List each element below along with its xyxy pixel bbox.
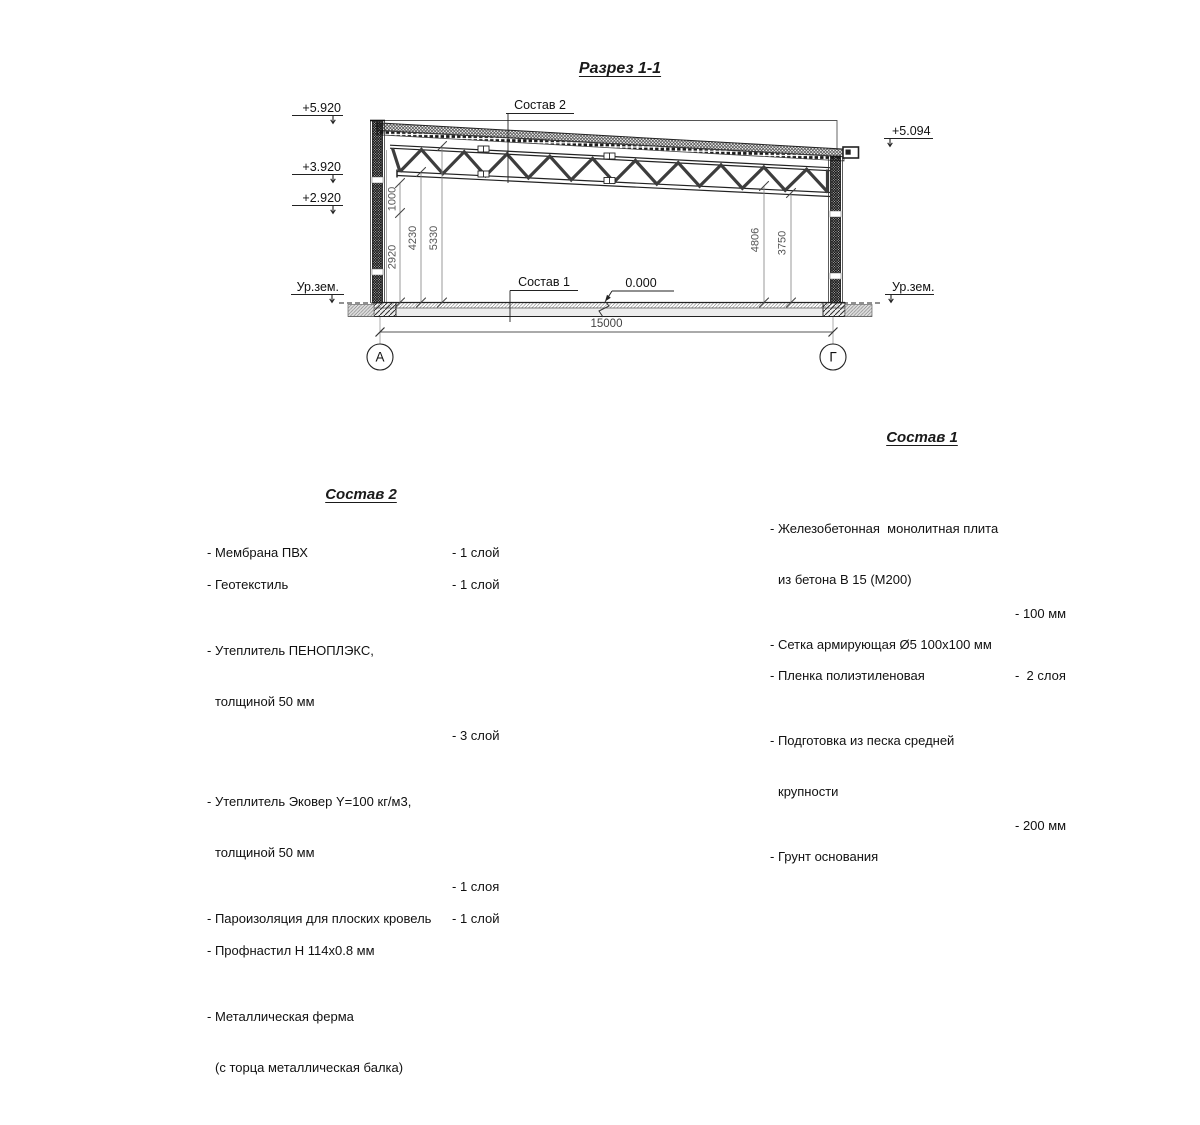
material-quantity: - 1 слой [452,576,500,593]
dim-value: 3750 [777,231,789,255]
list-item: - Подготовка из песка средней крупности … [770,698,1070,834]
material-name: - Геотекстиль [207,576,452,593]
leader-label: Состав 2 [514,98,566,112]
elevation-value: +5.094 [892,124,931,138]
material-name: - Металлическая ферма [207,1008,452,1025]
material-name-line2: толщиной 50 мм [207,693,452,710]
list-item: - Металлическая ферма (с торца металличе… [207,974,507,1110]
material-name: - Пароизоляция для плоских кровель [207,910,452,927]
level-arrow-icon [889,295,894,302]
material-name: - Утеплитель Эковер Y=100 кг/м3, [207,793,452,810]
material-name: - Сетка армирующая Ø5 100х100 мм [770,636,1015,653]
list-item: - Грунт основания [770,848,1070,865]
dim-value: 5330 [428,226,440,250]
ground-left [339,303,375,317]
level-arrow-icon [331,206,336,213]
list-item: - Пленка полиэтиленовая - 2 слоя [770,667,1070,684]
foundation-right [823,303,845,317]
dim-value: 2920 [387,245,399,269]
panel-joint [830,273,841,279]
list-item: - Геотекстиль - 1 слой [207,576,507,593]
elevation-value: +5.920 [302,101,341,115]
material-quantity: - 2 слоя [1015,667,1066,684]
material-quantity: - 200 мм [1015,817,1066,834]
material-name-line2: толщиной 50 мм [207,844,452,861]
roof-end-cap [843,147,859,158]
axis-letter: Г [829,350,837,365]
left-wall [370,121,387,304]
material-name: - Утеплитель ПЕНОПЛЭКС, [207,642,452,659]
material-name: - Грунт основания [770,848,1015,865]
dimension-right-group: 4806 3750 [750,182,796,308]
floor-slab [348,301,872,317]
list-item: - Пароизоляция для плоских кровель - 1 с… [207,910,507,927]
ground-right [843,303,880,317]
ground-level-label: Ур.зем. [297,280,339,294]
level-arrow-icon [330,295,335,302]
ground-level-label: Ур.зем. [892,280,934,294]
material-name-line2: из бетона В 15 (М200) [770,571,1015,588]
elevation-mark-3920: +3.920 [292,160,343,182]
sostav2-heading: Состав 2 [281,486,441,503]
material-name: - Мембрана ПВХ [207,544,452,561]
dim-value: 4806 [750,228,762,252]
leader-label: Состав 1 [518,275,570,289]
elevation-value: +2.920 [302,191,341,205]
sostav1-heading: Состав 1 [842,429,1002,446]
sostav1-list: - Железобетонная монолитная плита из бет… [770,486,1070,879]
elevation-mark-5920: +5.920 [292,101,343,123]
material-quantity: - 100 мм [1015,605,1066,622]
axis-letter: А [375,350,384,365]
right-wall [829,156,843,303]
span-dim-value: 15000 [591,318,623,330]
list-item: - Утеплитель Эковер Y=100 кг/м3, толщино… [207,759,507,895]
leader-arrowhead [605,295,611,302]
ground-level-mark-right: Ур.зем. [885,280,934,302]
sostav2-list: - Мембрана ПВХ - 1 слой - Геотекстиль - … [207,544,507,1125]
panel-joint [830,211,841,217]
elevation-mark-2920: +2.920 [292,191,343,213]
list-item: - Утеплитель ПЕНОПЛЭКС, толщиной 50 мм -… [207,608,507,744]
dim-value: 4230 [407,226,419,250]
span-dimension: 15000 [376,317,838,344]
level-arrow-icon [331,175,336,182]
list-item: - Мембрана ПВХ - 1 слой [207,544,507,561]
material-name-line2: (с торца металлическая балка) [207,1059,452,1076]
panel-joint [372,269,383,275]
level-arrow-icon [331,116,336,123]
foundation-left [374,303,396,317]
material-name: - Железобетонная монолитная плита [770,520,1015,537]
elevation-mark-5094: +5.094 [884,124,933,146]
material-quantity: - 1 слоя [452,878,499,895]
material-quantity: - 1 слой [452,910,500,927]
axis-bubble-g: Г [820,344,846,370]
material-name: - Подготовка из песка средней [770,732,1015,749]
list-item: - Профнастил Н 114х0.8 мм [207,942,507,959]
zero-level-value: 0.000 [625,276,656,290]
roof-assembly [377,123,859,161]
level-arrow-icon [888,139,893,146]
material-quantity: - 3 слой [452,727,500,744]
material-quantity: - 1 слой [452,544,500,561]
material-name-line2: крупности [770,783,1015,800]
elevation-value: +3.920 [302,160,341,174]
axis-bubble-a: А [367,344,393,370]
list-item: - Железобетонная монолитная плита из бет… [770,486,1070,622]
zero-level-mark: 0.000 [605,276,674,302]
drawing-title: Разрез 1-1 [540,60,700,78]
list-item: - Сетка армирующая Ø5 100х100 мм [770,636,1070,653]
material-name: - Пленка полиэтиленовая [770,667,1015,684]
dim-value: 1000 [387,187,399,211]
ground-level-mark-left: Ур.зем. [291,280,344,302]
panel-joint [372,177,383,183]
material-name: - Профнастил Н 114х0.8 мм [207,942,452,959]
